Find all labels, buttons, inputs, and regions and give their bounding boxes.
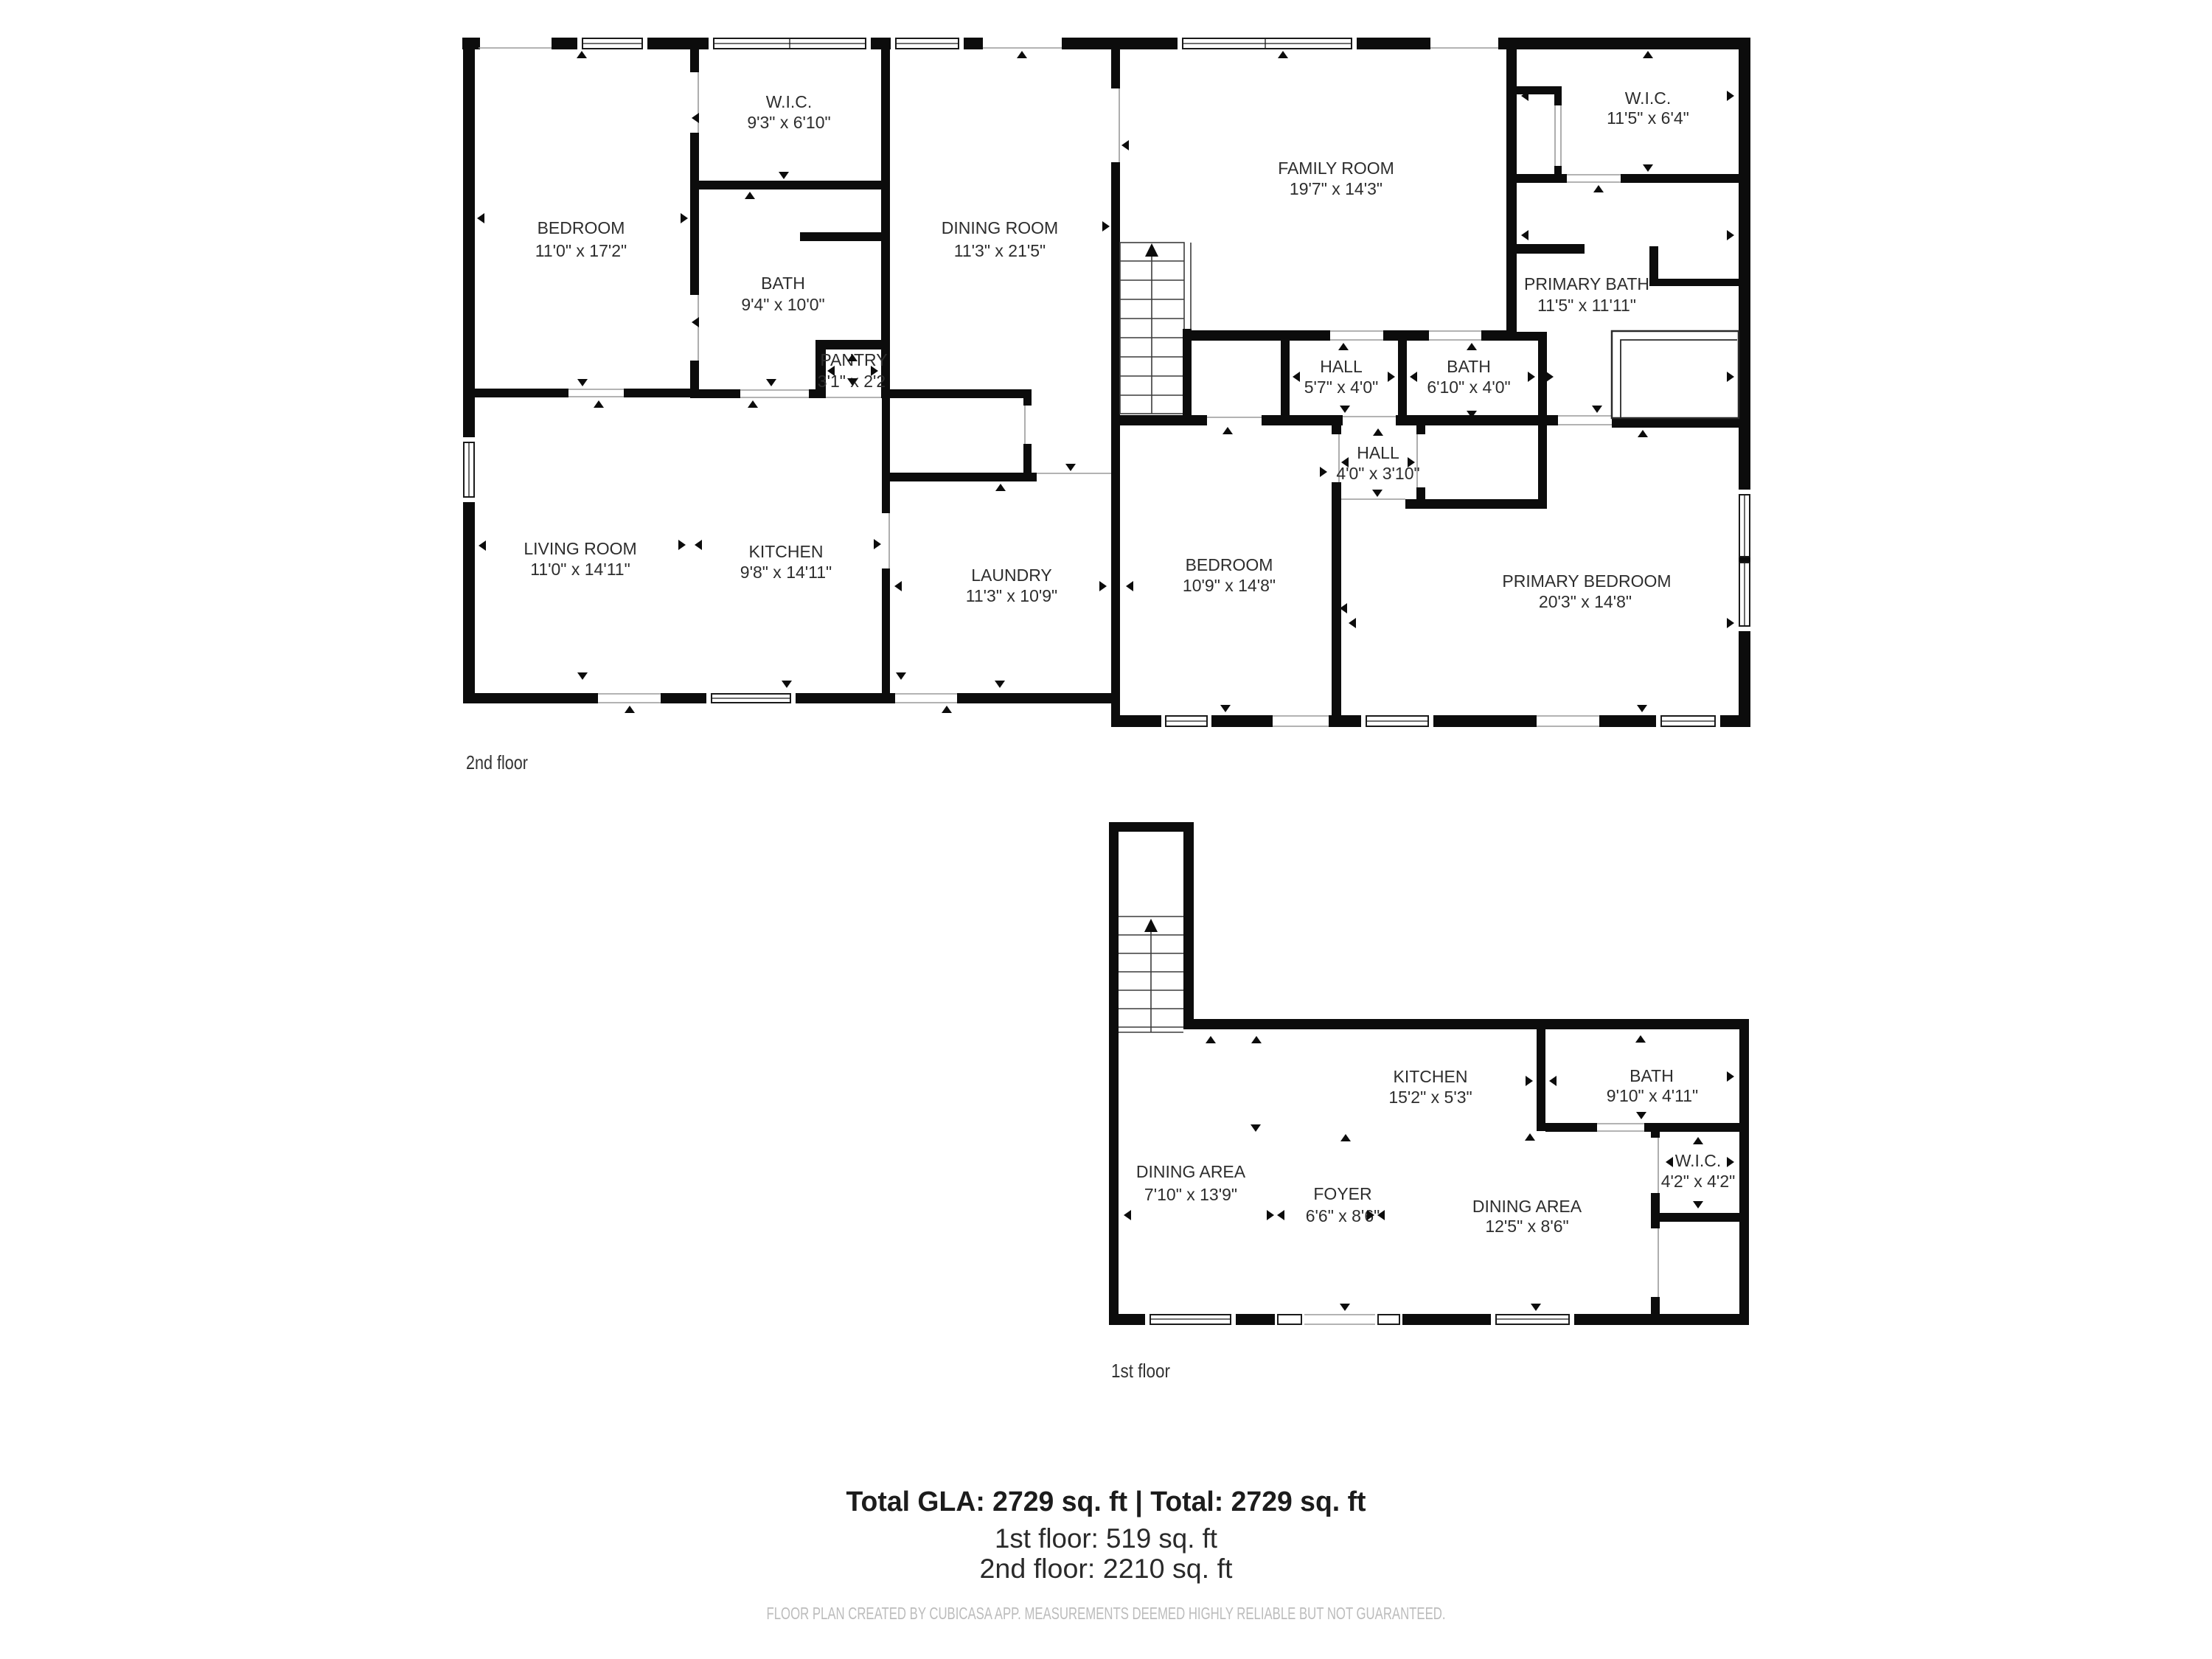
svg-text:9'10" x 4'11": 9'10" x 4'11" xyxy=(1607,1086,1698,1105)
svg-text:4'0" x 3'10": 4'0" x 3'10" xyxy=(1336,464,1419,483)
svg-text:15'2" x 5'3": 15'2" x 5'3" xyxy=(1388,1088,1472,1107)
svg-text:9'4" x 10'0": 9'4" x 10'0" xyxy=(741,295,824,314)
svg-text:HALL: HALL xyxy=(1357,443,1399,462)
svg-text:DINING AREA: DINING AREA xyxy=(1472,1197,1582,1216)
svg-text:2nd floor: 2210 sq. ft: 2nd floor: 2210 sq. ft xyxy=(980,1553,1234,1584)
svg-text:11'3" x 21'5": 11'3" x 21'5" xyxy=(954,241,1046,260)
svg-text:6'10" x 4'0": 6'10" x 4'0" xyxy=(1427,378,1510,397)
svg-text:20'3" x 14'8": 20'3" x 14'8" xyxy=(1539,592,1632,611)
svg-text:FLOOR PLAN CREATED BY CUBICASA: FLOOR PLAN CREATED BY CUBICASA APP. MEAS… xyxy=(767,1604,1446,1623)
svg-text:2nd floor: 2nd floor xyxy=(466,751,528,773)
svg-text:KITCHEN: KITCHEN xyxy=(749,542,824,561)
svg-text:DINING ROOM: DINING ROOM xyxy=(942,218,1058,237)
svg-text:BEDROOM: BEDROOM xyxy=(538,218,625,237)
svg-text:FAMILY ROOM: FAMILY ROOM xyxy=(1278,159,1394,178)
svg-text:7'10" x 13'9": 7'10" x 13'9" xyxy=(1144,1185,1237,1204)
svg-text:LAUNDRY: LAUNDRY xyxy=(971,566,1052,585)
svg-text:BATH: BATH xyxy=(1630,1066,1674,1085)
svg-text:11'3" x 10'9": 11'3" x 10'9" xyxy=(966,586,1057,605)
svg-text:BEDROOM: BEDROOM xyxy=(1186,555,1273,574)
svg-text:W.I.C.: W.I.C. xyxy=(766,92,813,111)
svg-text:5'7" x 4'0": 5'7" x 4'0" xyxy=(1304,378,1379,397)
svg-text:19'7" x 14'3": 19'7" x 14'3" xyxy=(1290,179,1382,198)
svg-text:W.I.C.: W.I.C. xyxy=(1675,1151,1722,1170)
svg-text:PRIMARY BATH: PRIMARY BATH xyxy=(1524,274,1649,293)
svg-text:DINING AREA: DINING AREA xyxy=(1136,1162,1246,1181)
svg-text:PRIMARY BEDROOM: PRIMARY BEDROOM xyxy=(1502,571,1671,591)
svg-text:9'8" x 14'11": 9'8" x 14'11" xyxy=(740,563,832,582)
svg-text:10'9" x 14'8": 10'9" x 14'8" xyxy=(1183,576,1276,595)
svg-text:Total GLA: 2729 sq. ft | Total: Total GLA: 2729 sq. ft | Total: 2729 sq.… xyxy=(846,1486,1366,1517)
svg-text:HALL: HALL xyxy=(1320,357,1363,376)
svg-text:11'5" x 11'11": 11'5" x 11'11" xyxy=(1537,296,1636,315)
svg-text:W.I.C.: W.I.C. xyxy=(1625,88,1672,108)
svg-text:11'5" x 6'4": 11'5" x 6'4" xyxy=(1607,108,1689,128)
svg-text:9'3" x 6'10": 9'3" x 6'10" xyxy=(747,113,830,132)
svg-text:FOYER: FOYER xyxy=(1313,1184,1371,1203)
svg-text:1st floor: 1st floor xyxy=(1111,1360,1170,1382)
svg-text:BATH: BATH xyxy=(761,274,805,293)
svg-text:4'2" x 4'2": 4'2" x 4'2" xyxy=(1661,1172,1736,1191)
svg-text:11'0" x 17'2": 11'0" x 17'2" xyxy=(535,241,627,260)
svg-text:1st floor: 519 sq. ft: 1st floor: 519 sq. ft xyxy=(995,1523,1218,1554)
svg-text:11'0" x 14'11": 11'0" x 14'11" xyxy=(530,560,630,579)
svg-text:KITCHEN: KITCHEN xyxy=(1394,1067,1468,1086)
svg-text:LIVING ROOM: LIVING ROOM xyxy=(524,539,636,558)
svg-text:12'5" x 8'6": 12'5" x 8'6" xyxy=(1485,1217,1568,1236)
svg-text:BATH: BATH xyxy=(1447,357,1491,376)
